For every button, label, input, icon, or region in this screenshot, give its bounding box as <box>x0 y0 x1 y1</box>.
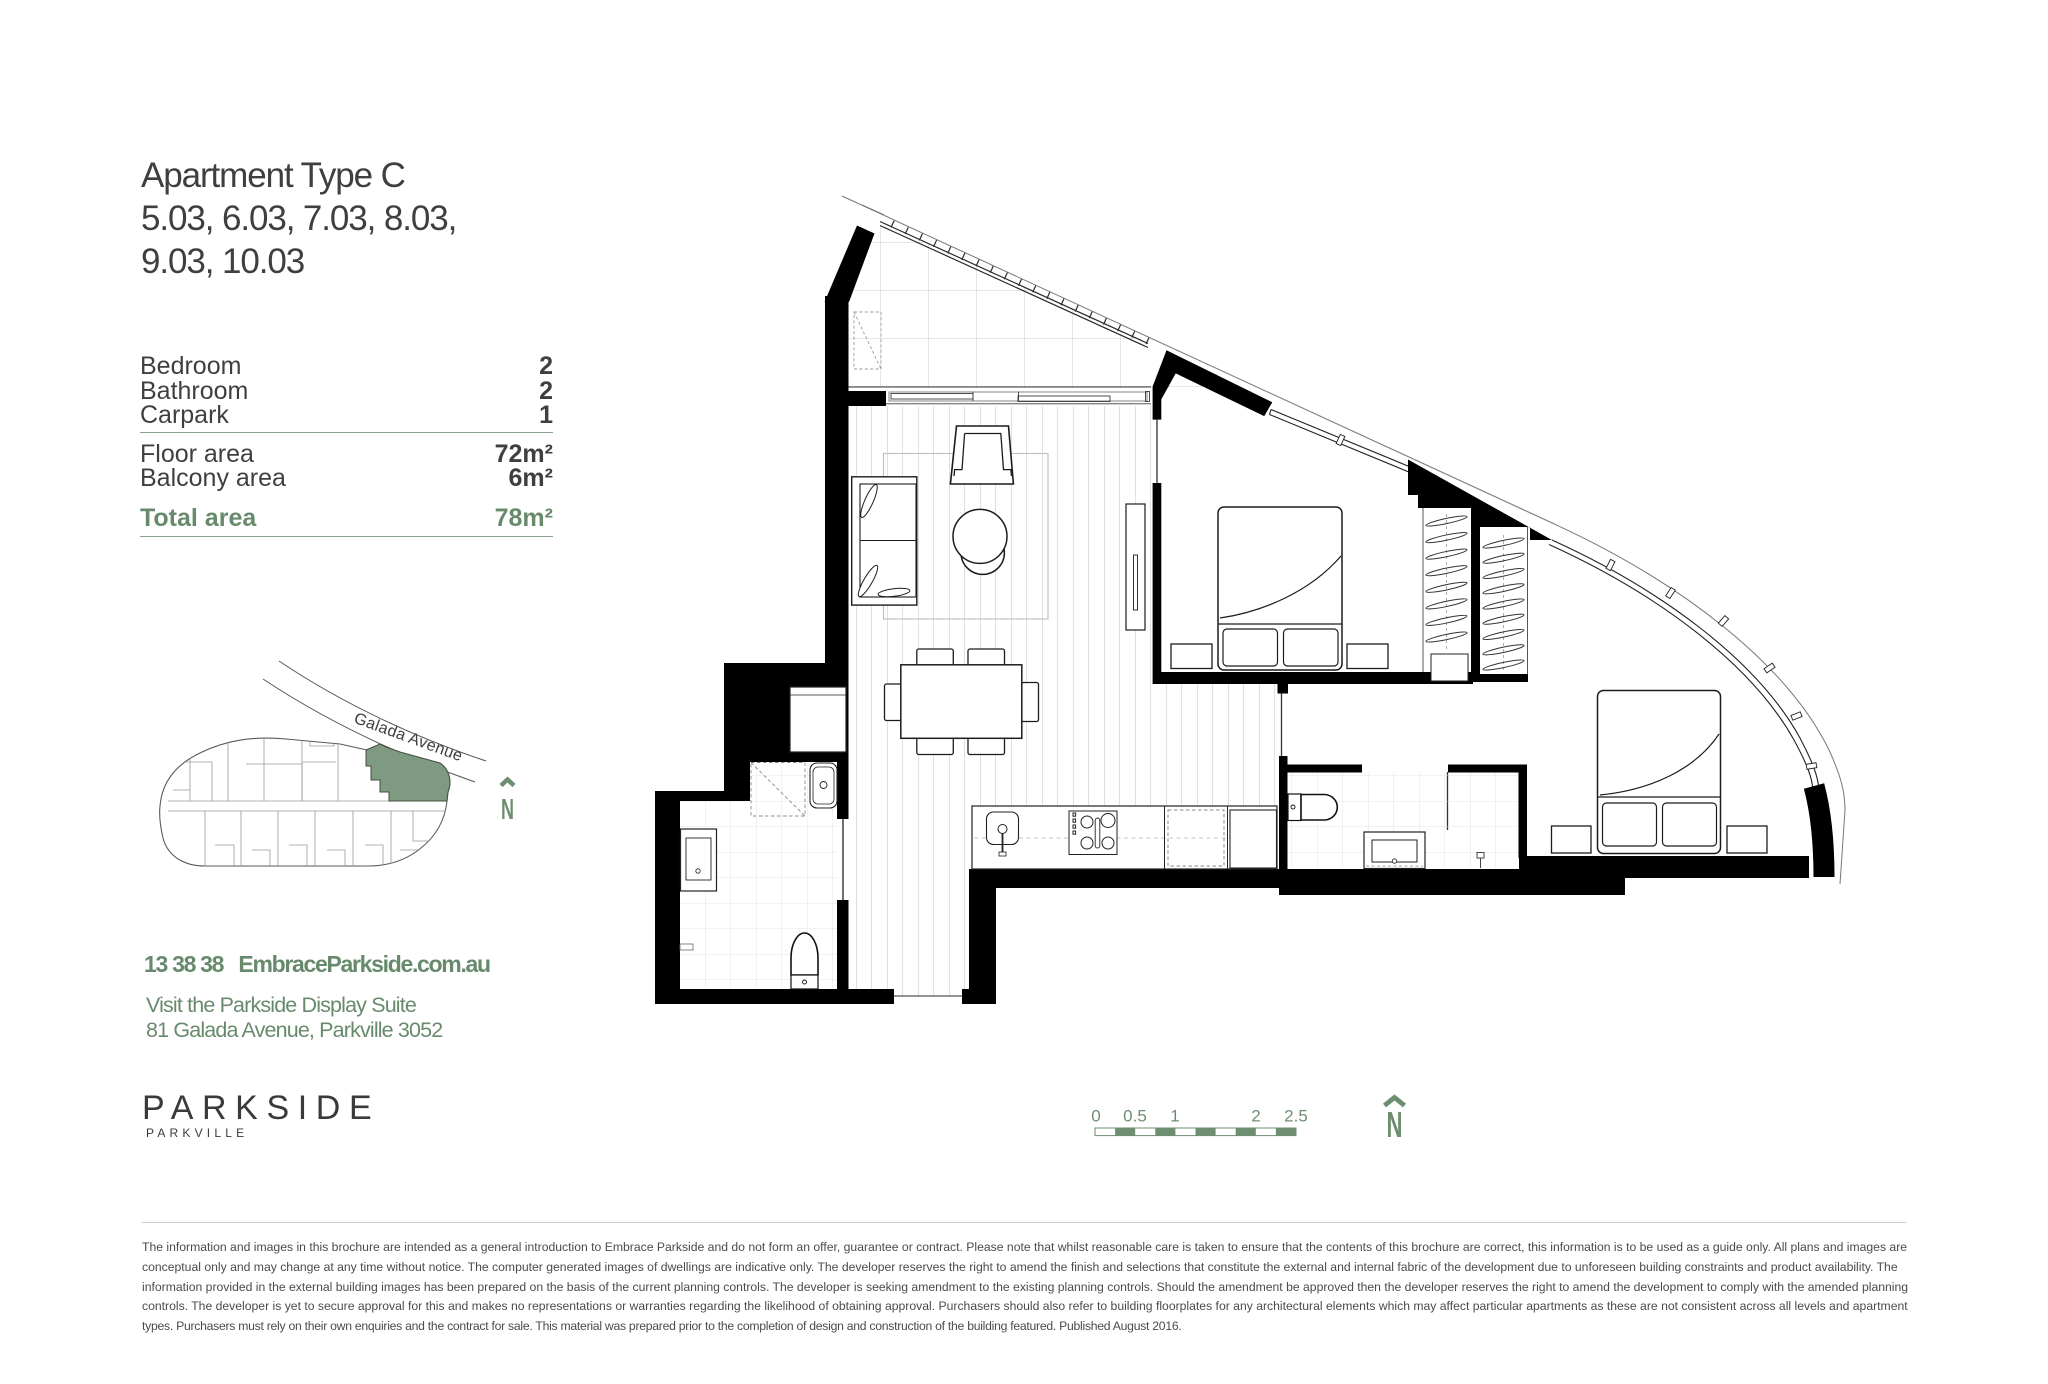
svg-text:N: N <box>1387 1104 1403 1145</box>
svg-text:0.5: 0.5 <box>1123 1107 1147 1126</box>
svg-text:2: 2 <box>1251 1107 1260 1126</box>
svg-text:0: 0 <box>1091 1107 1100 1126</box>
svg-text:N: N <box>501 794 514 826</box>
svg-text:1: 1 <box>1170 1107 1179 1126</box>
svg-text:2.5: 2.5 <box>1284 1107 1308 1126</box>
